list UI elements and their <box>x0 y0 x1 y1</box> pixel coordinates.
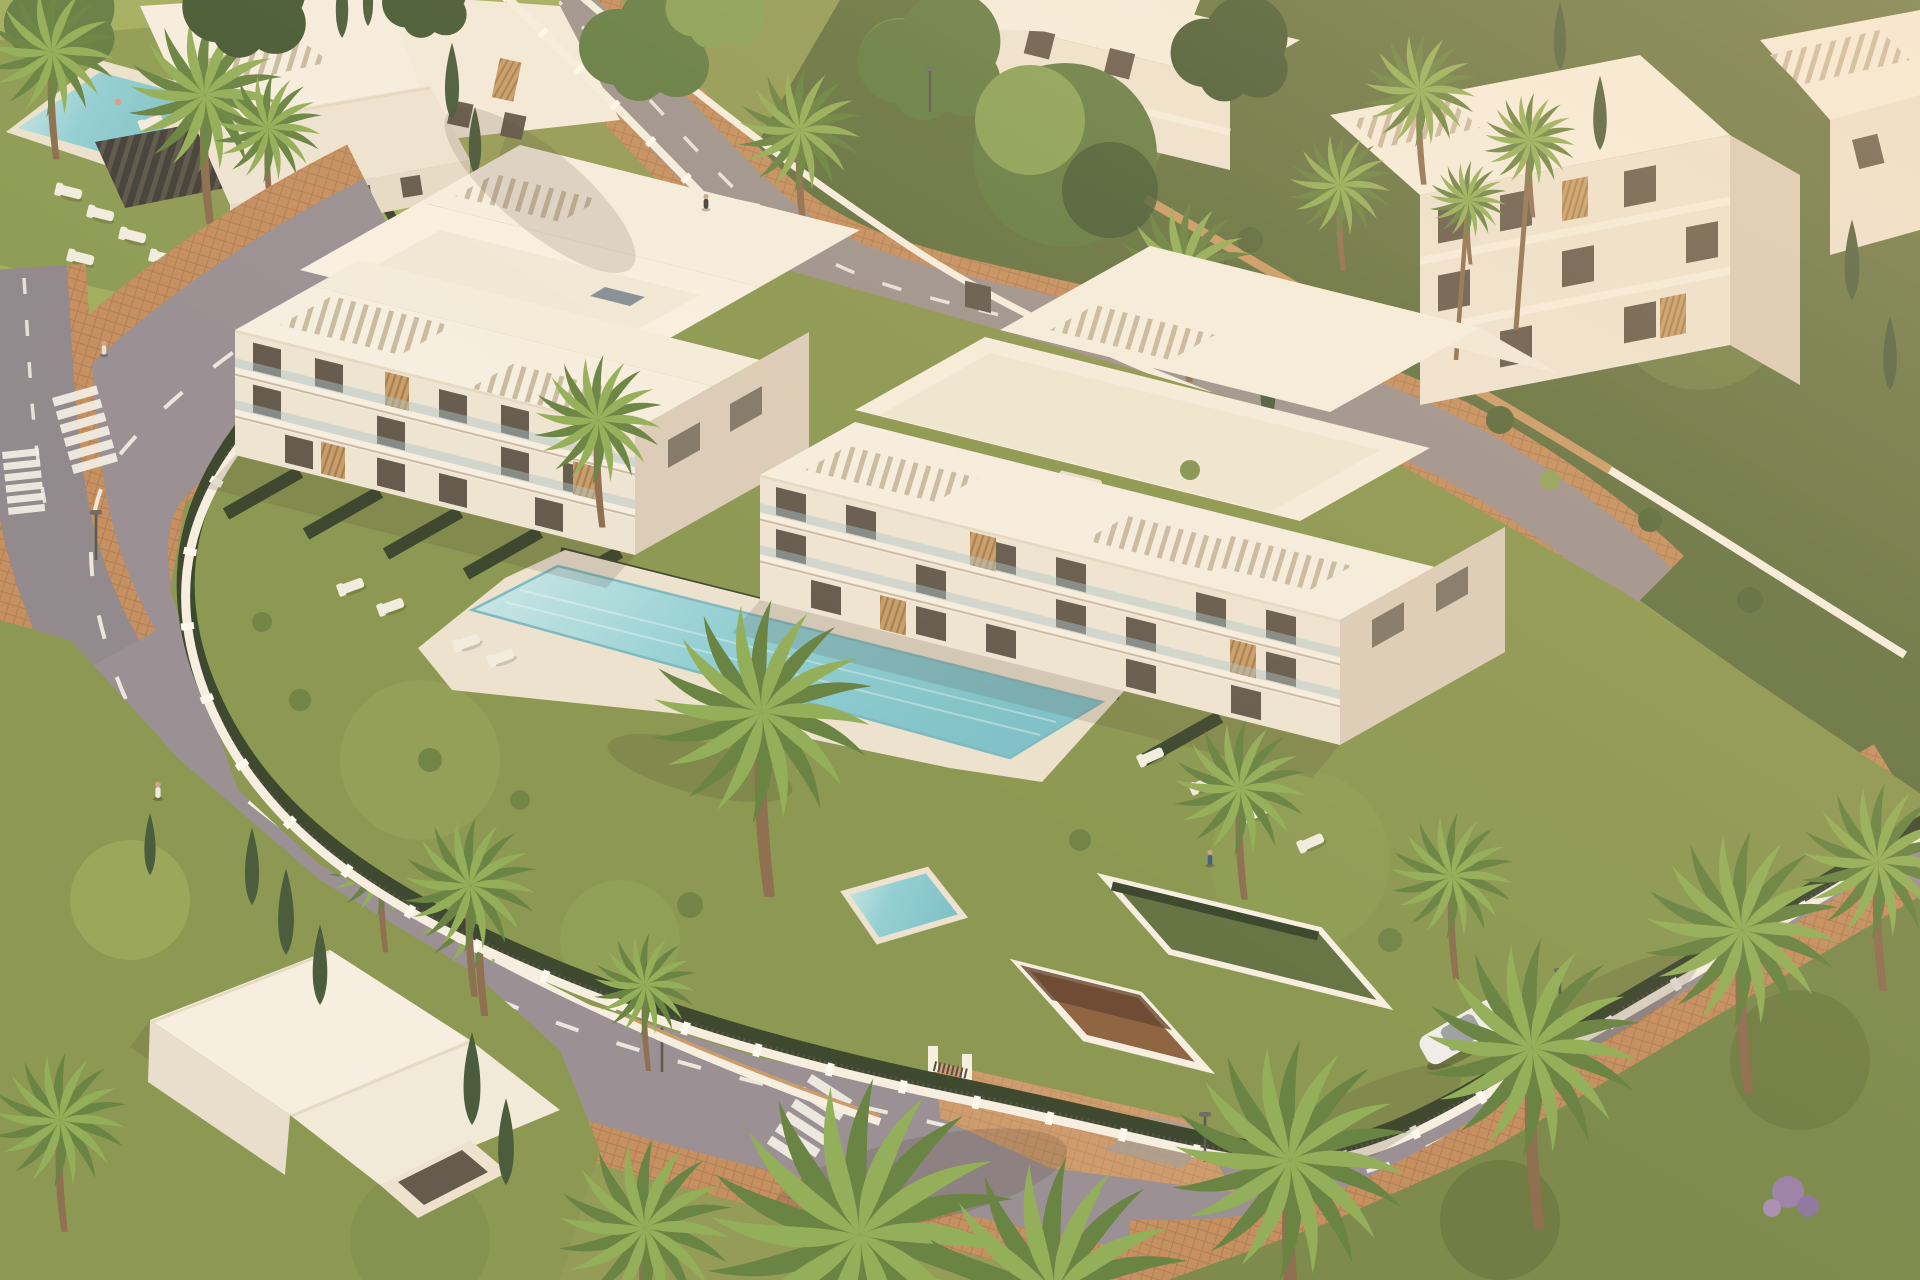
warm-tint <box>0 0 1920 1280</box>
aerial-render <box>0 0 1920 1280</box>
render-canvas <box>0 0 1920 1280</box>
